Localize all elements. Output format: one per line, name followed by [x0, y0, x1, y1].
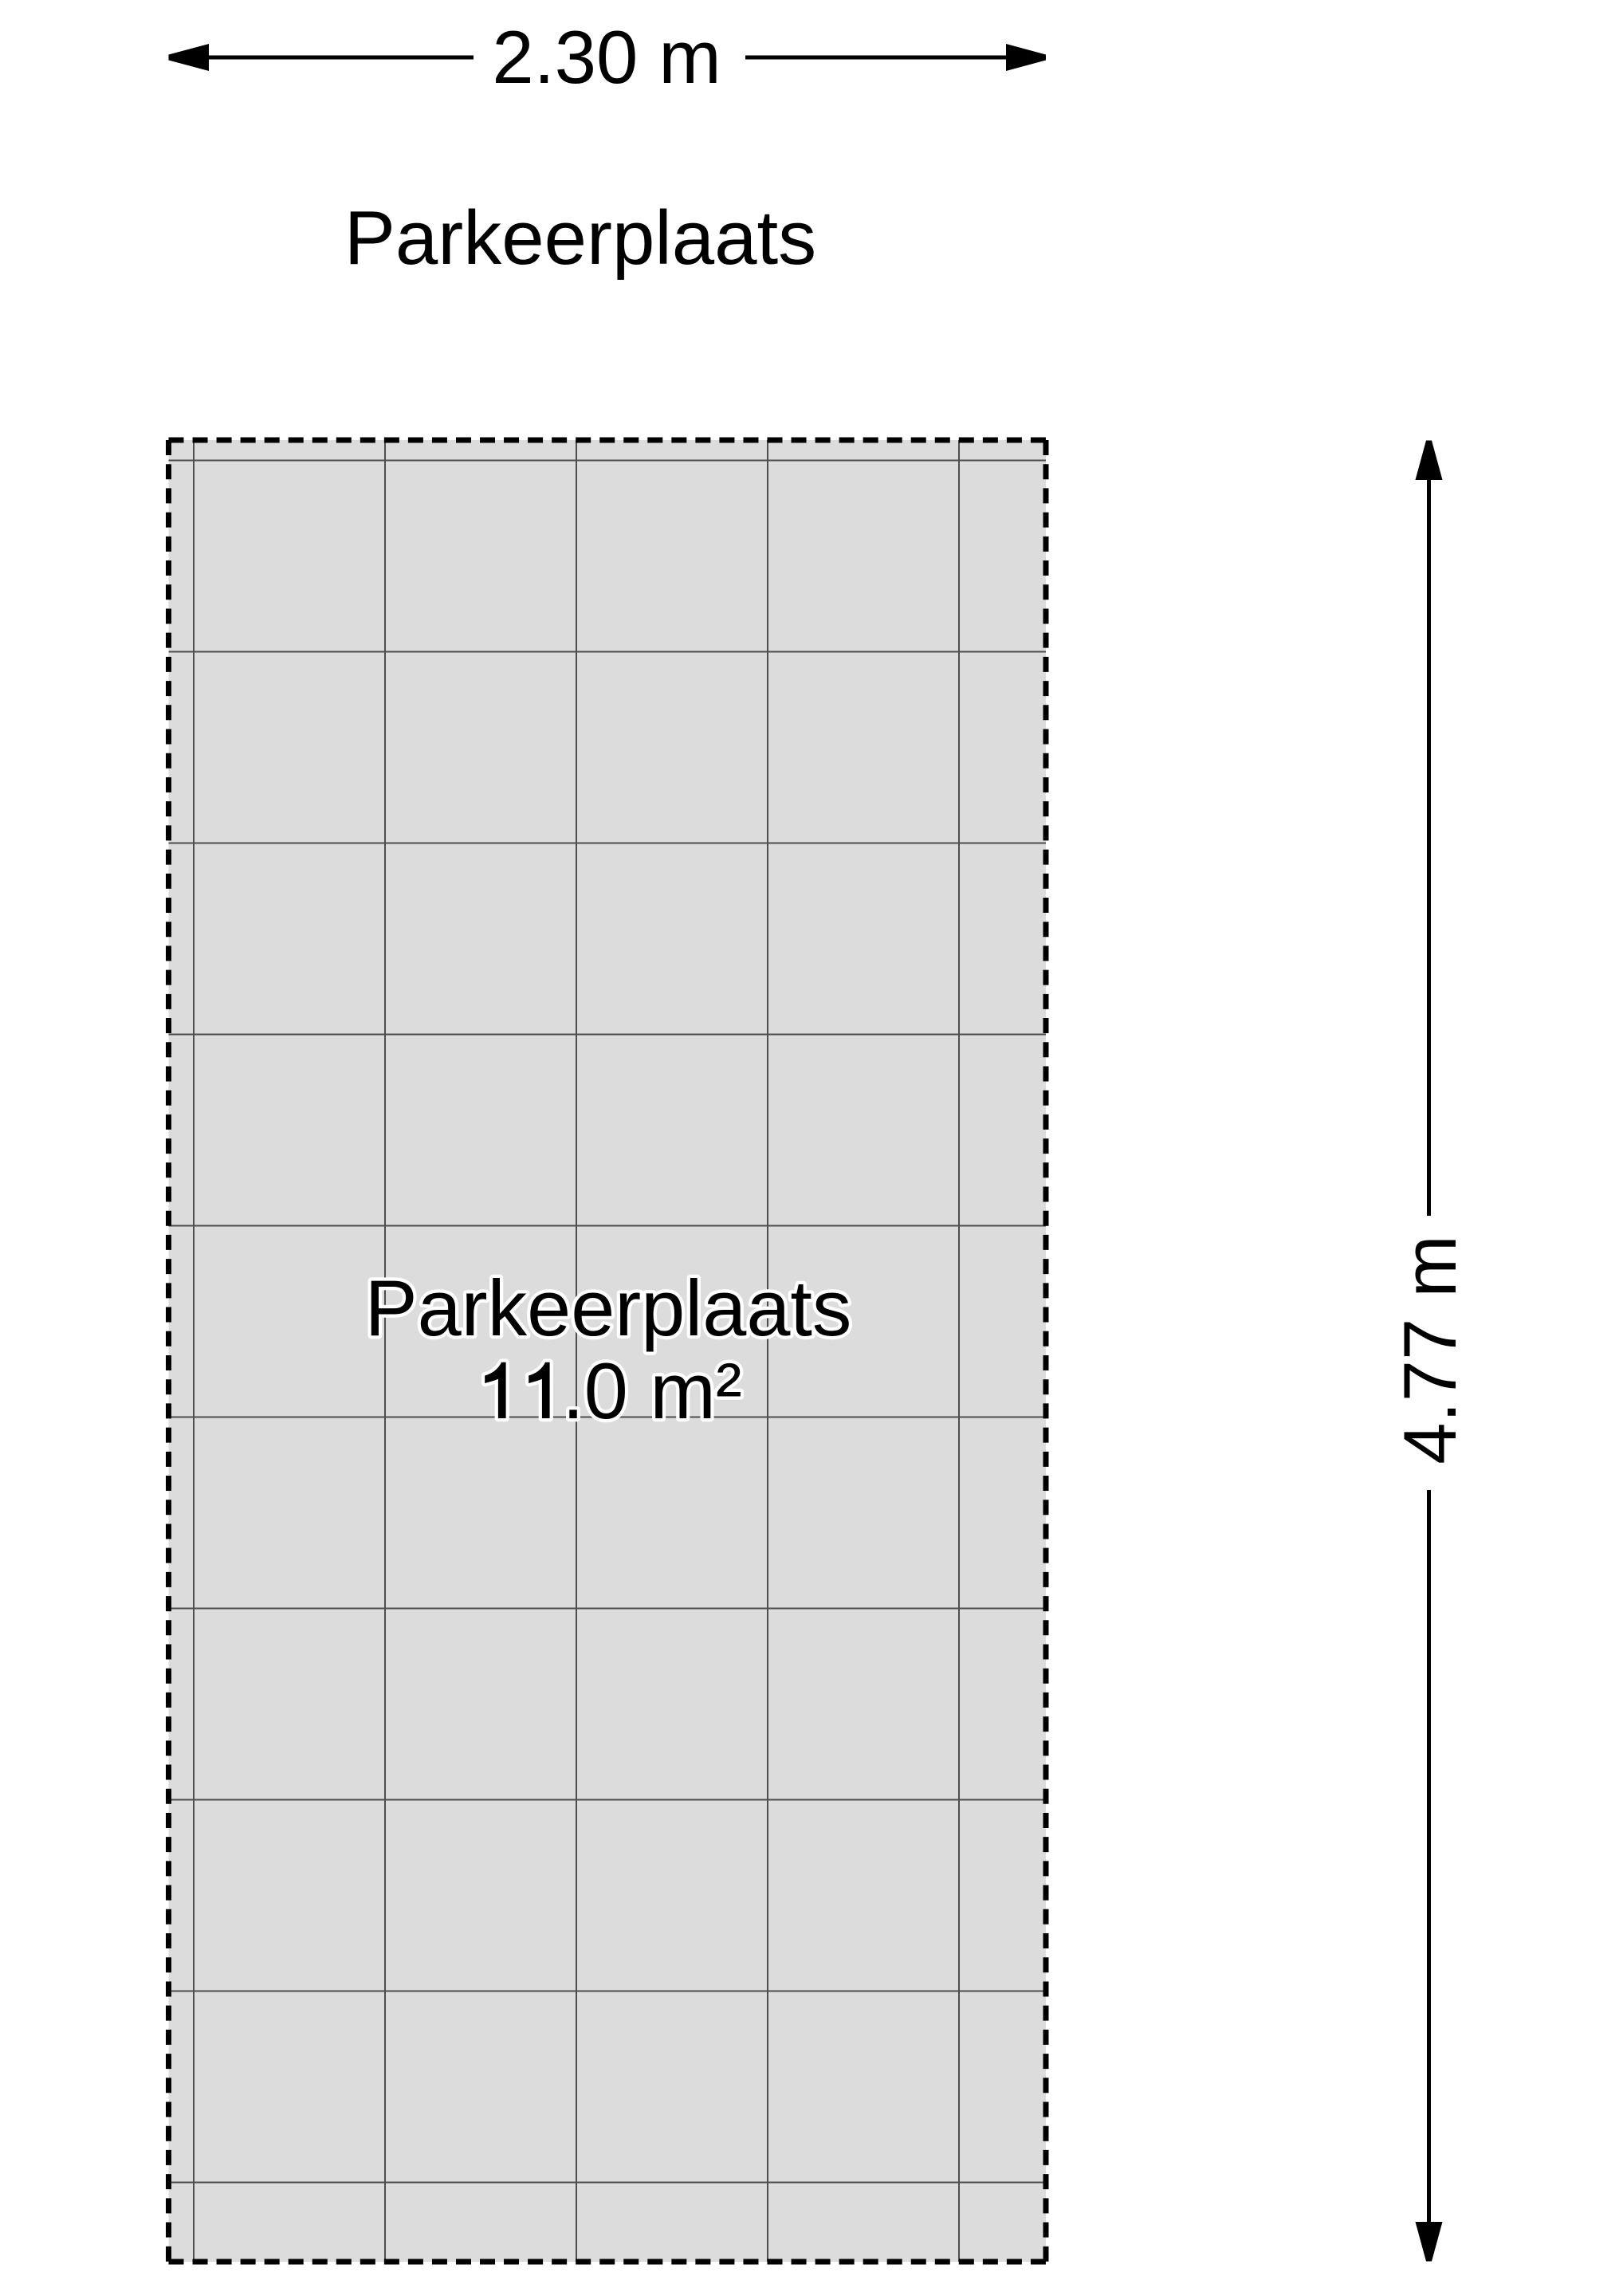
svg-text:4.77 m: 4.77 m [1388, 1235, 1472, 1464]
svg-text:Parkeerplaats: Parkeerplaats [344, 195, 816, 281]
svg-text:2.30 m: 2.30 m [492, 15, 721, 99]
svg-text:Parkeerplaats: Parkeerplaats [365, 1264, 852, 1352]
svg-text:.0 m²: .0 m² [562, 1347, 742, 1435]
